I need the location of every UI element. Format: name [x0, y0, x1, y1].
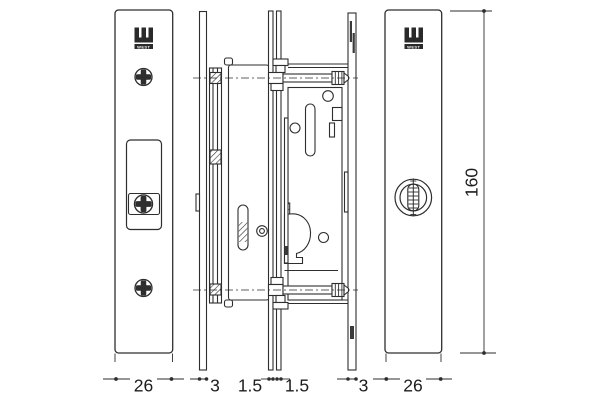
bracket-boss-bottom	[210, 284, 221, 295]
right-stile-clip-1	[350, 21, 352, 42]
body-slot	[306, 104, 316, 156]
left-plate-top-screw	[135, 69, 152, 86]
body-tab	[330, 123, 335, 137]
body-hole-top	[323, 91, 334, 102]
body-hole-bottom	[319, 233, 329, 243]
dim-overall-height: 160	[450, 9, 496, 355]
brand-logo-left-text: WEST	[137, 45, 150, 50]
lockset-technical-drawing: WEST	[0, 0, 600, 400]
technical-drawing-page: WEST	[0, 0, 600, 400]
brand-logo-right-text: WEST	[407, 45, 420, 50]
inside-lock-case	[225, 58, 270, 307]
dim-right-stile: 3	[337, 376, 368, 396]
left-faceplate: WEST	[115, 10, 173, 353]
right-stile-wall	[348, 13, 356, 370]
right-faceplate: WEST	[385, 10, 442, 353]
bolt-tail-column	[285, 118, 289, 263]
dim-label-right-stile: 3	[359, 376, 369, 396]
dim-right-gap: 1.5	[275, 376, 309, 396]
right-stile-clip-2	[353, 33, 355, 53]
dim-label-right-gap: 1.5	[285, 376, 309, 396]
dim-left-gap: 1.5	[238, 376, 275, 396]
body-notch	[333, 108, 343, 121]
dim-label-left-gap: 1.5	[238, 376, 262, 396]
case-slot-hatch	[239, 222, 247, 242]
bracket-outline	[210, 68, 222, 303]
left-stile-wall	[200, 12, 207, 371]
dim-left-stile: 3	[190, 376, 220, 396]
meeting-stile-left-wall	[269, 11, 274, 370]
case-bottom-tab	[225, 300, 233, 307]
case-top-tab	[225, 58, 233, 65]
right-stile-trigger	[345, 172, 349, 212]
recess-screw	[134, 195, 152, 213]
left-stile-trigger	[196, 194, 200, 211]
dim-left-plate-width: 26	[103, 354, 184, 396]
mounting-bracket	[210, 68, 222, 303]
dim-label-right-plate-width: 26	[403, 376, 422, 396]
pull-recess	[127, 140, 162, 230]
dim-label-left-stile: 3	[210, 376, 220, 396]
case-body	[229, 65, 270, 300]
dim-label-overall-height: 160	[462, 168, 482, 197]
right-stile-clip-3	[350, 326, 354, 339]
body-hole-mid	[290, 123, 300, 133]
brand-logo-left: WEST	[135, 28, 154, 50]
left-plate-bottom-screw	[135, 280, 152, 297]
lock-cylinder	[395, 179, 432, 217]
brand-logo-right: WEST	[405, 28, 424, 50]
dim-label-left-plate-width: 26	[134, 376, 153, 396]
outside-lock-body	[285, 64, 350, 304]
center-section-view	[193, 11, 358, 370]
bolt-tail-tick	[285, 246, 288, 255]
bracket-boss-mid	[210, 150, 221, 164]
dim-right-plate-width: 26	[373, 354, 452, 396]
